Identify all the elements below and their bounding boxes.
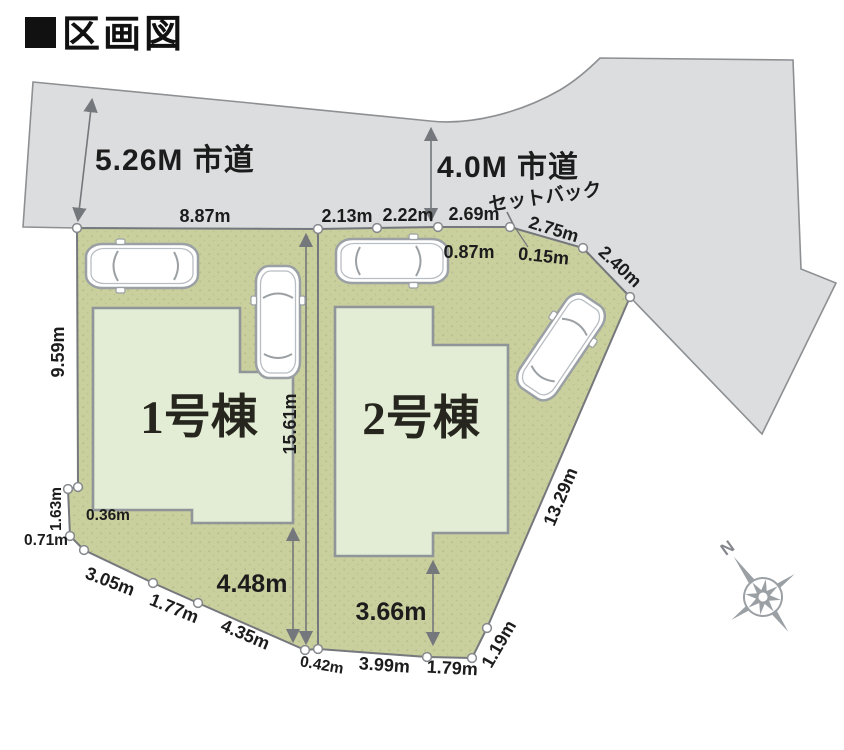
dim-left-9-59: 9.59m xyxy=(48,326,68,377)
dim-setback-0-87: 0.87m xyxy=(443,242,494,262)
survey-point xyxy=(73,224,82,233)
survey-point xyxy=(579,244,588,253)
car-lot1-vertical xyxy=(251,266,305,378)
dim-top-2-22: 2.22m xyxy=(382,205,433,225)
dim-depth-15-61: 15.61m xyxy=(280,393,300,454)
survey-point xyxy=(314,645,323,654)
survey-point xyxy=(626,293,635,302)
plot-plan-page: N 区画図 5.26M 市道 4.0M 市道 セットバック 1号棟 2号棟 8.… xyxy=(0,0,844,750)
plot-plan-svg: N 区画図 5.26M 市道 4.0M 市道 セットバック 1号棟 2号棟 8.… xyxy=(0,0,844,750)
dim-depth-3-66: 3.66m xyxy=(356,598,427,626)
dim-bottom-0-42: 0.42m xyxy=(299,653,345,677)
survey-point xyxy=(80,546,89,555)
dim-bottom-1-79: 1.79m xyxy=(426,657,478,680)
survey-point xyxy=(506,223,515,232)
dim-top-8-87: 8.87m xyxy=(179,206,230,226)
survey-point xyxy=(434,223,443,232)
dim-left-1-63: 1.63m xyxy=(48,487,65,531)
survey-point xyxy=(483,624,492,633)
title-square-icon xyxy=(25,17,56,48)
car-lot2-horizontal xyxy=(336,234,448,288)
survey-point xyxy=(149,579,158,588)
north-label: N xyxy=(717,537,738,560)
compass-rose-icon: N xyxy=(690,517,820,654)
survey-point xyxy=(373,224,382,233)
dim-top-2-13: 2.13m xyxy=(321,206,372,226)
dim-top-2-69: 2.69m xyxy=(448,204,499,224)
dim-depth-4-48: 4.48m xyxy=(217,570,288,598)
dim-bottom-3-99: 3.99m xyxy=(358,653,410,677)
dim-left-0-36: 0.36m xyxy=(86,507,130,524)
dim-left-0-71: 0.71m xyxy=(24,532,68,549)
car-lot1-horizontal xyxy=(86,239,198,293)
building-2-label: 2号棟 xyxy=(362,393,480,445)
road-1-label: 5.26M 市道 xyxy=(95,143,255,177)
page-title: 区画図 xyxy=(62,14,185,56)
building-1-label: 1号棟 xyxy=(140,392,258,444)
survey-point xyxy=(74,483,83,492)
road-2-label: 4.0M 市道 xyxy=(437,150,579,184)
